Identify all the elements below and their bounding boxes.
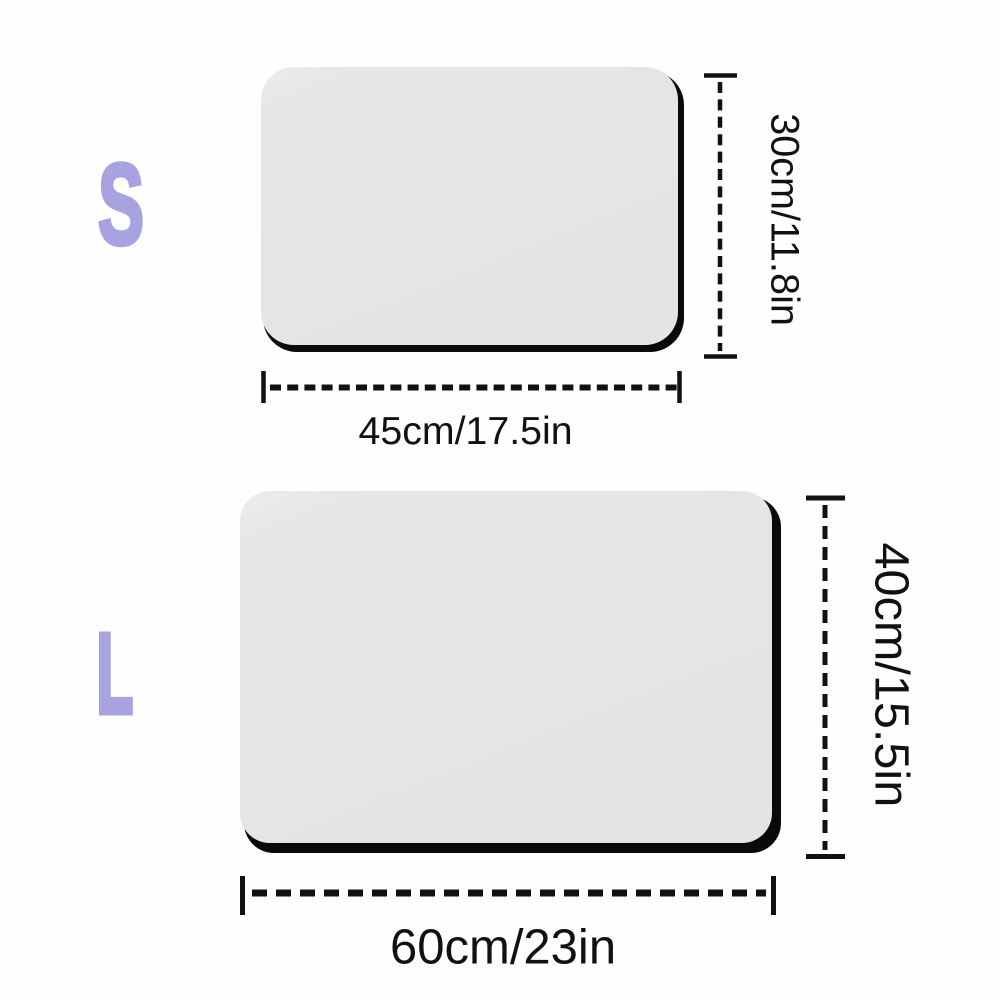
- svg-text:60cm/23in: 60cm/23in: [390, 921, 616, 975]
- svg-text:45cm/17.5in: 45cm/17.5in: [359, 409, 573, 453]
- svg-text:L: L: [97, 611, 134, 737]
- svg-text:30cm/11.8in: 30cm/11.8in: [763, 113, 807, 326]
- svg-text:S: S: [98, 141, 144, 270]
- svg-text:40cm/15.5in: 40cm/15.5in: [864, 543, 918, 808]
